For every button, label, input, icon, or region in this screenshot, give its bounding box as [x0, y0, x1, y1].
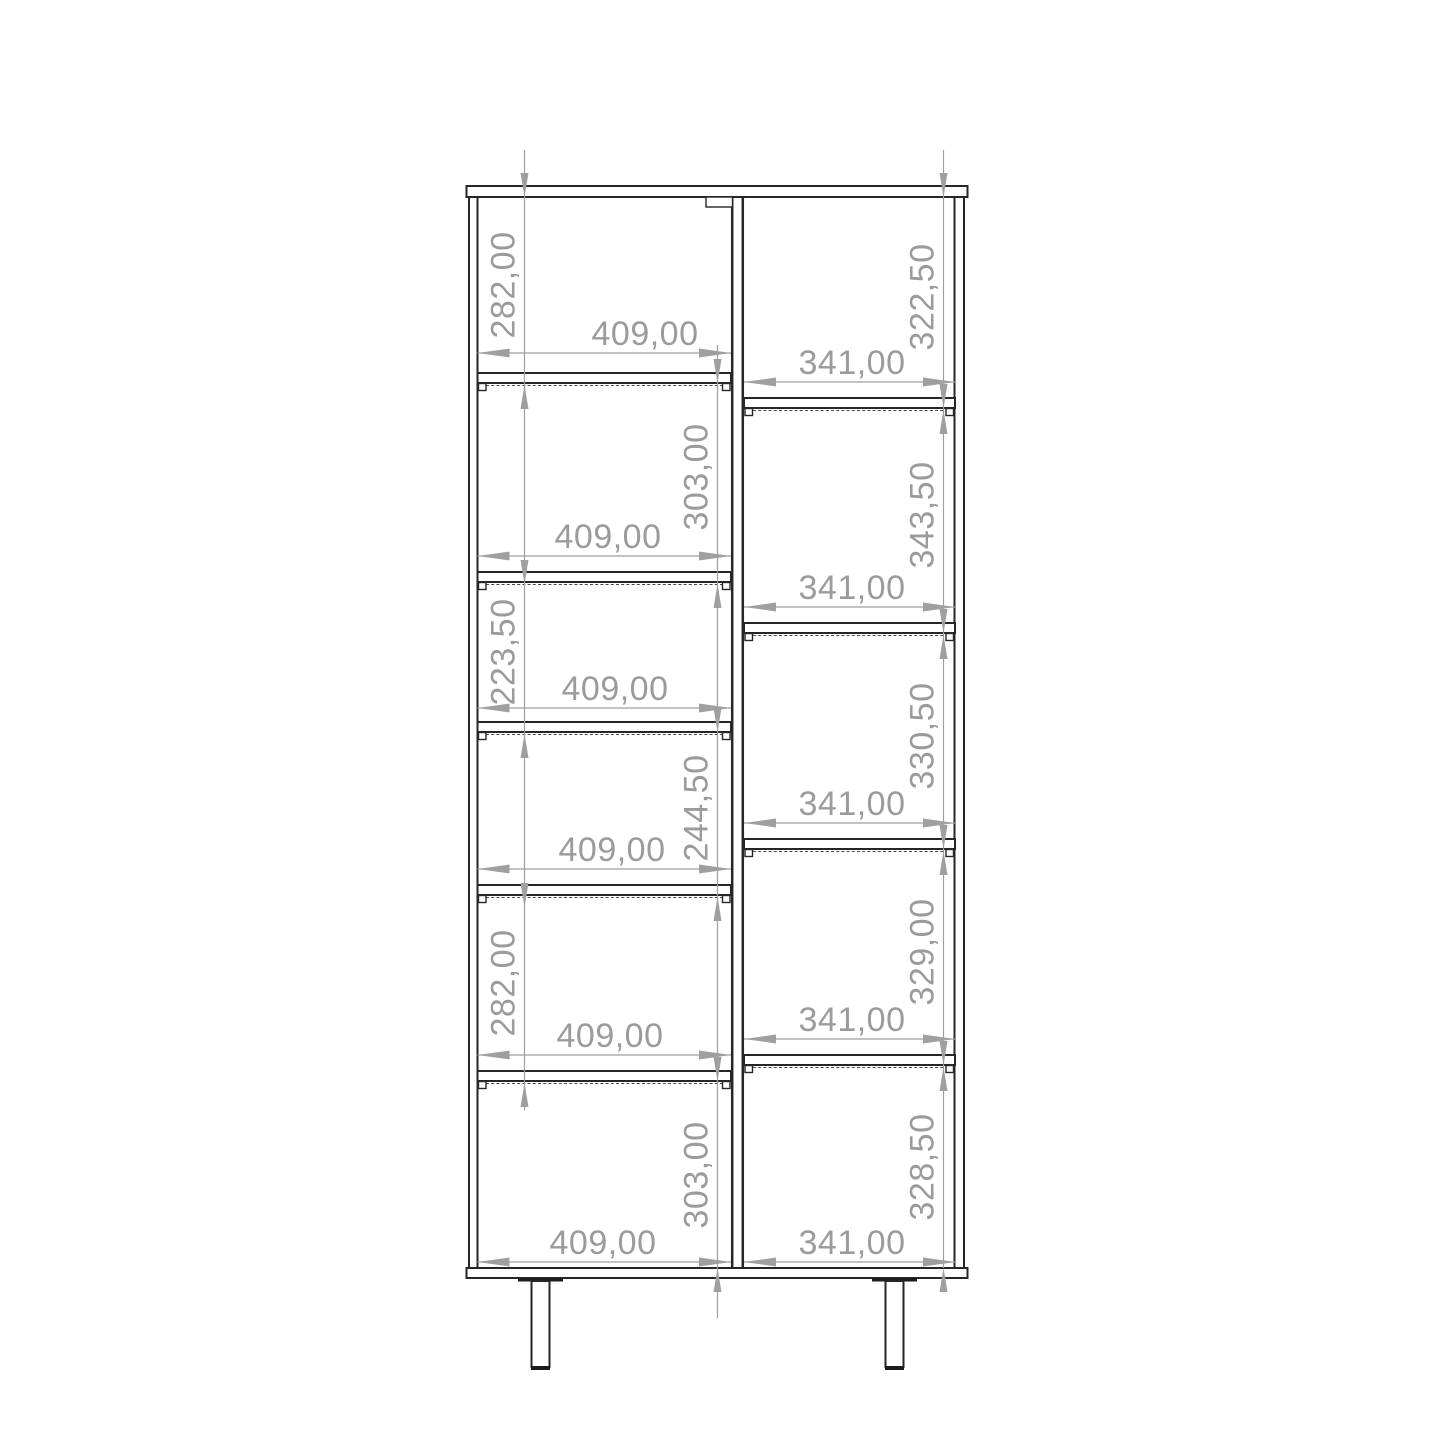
- dim-label-right-width-4: 341,00: [799, 1001, 906, 1039]
- dim-label-right-height-3: 330,50: [904, 683, 942, 790]
- leg-left: [518, 1278, 563, 1370]
- left-side-panel: [469, 197, 478, 1268]
- shelf: [478, 373, 732, 383]
- drawing-canvas: 409,00 409,00 409,00 409,00 409,00 409,0…: [0, 0, 1440, 1440]
- shelf: [744, 839, 955, 849]
- dim-label-right-height-1: 322,50: [904, 244, 942, 351]
- dim-label-right-width-5: 341,00: [799, 1224, 906, 1262]
- dimension-labels: 409,00 409,00 409,00 409,00 409,00 409,0…: [485, 232, 942, 1263]
- dim-label-right-width-2: 341,00: [799, 569, 906, 607]
- shelf: [744, 623, 955, 633]
- divider-top-connector: [706, 197, 733, 207]
- dim-label-left-width-6: 409,00: [550, 1224, 657, 1262]
- dim-label-left-height-1: 282,00: [485, 232, 523, 339]
- shelf: [478, 572, 732, 582]
- dim-label-left-width-1: 409,00: [592, 315, 699, 353]
- dim-label-left-height-6: 303,00: [678, 1122, 716, 1229]
- shelf: [478, 722, 732, 732]
- shelf: [478, 1071, 732, 1081]
- cabinet-dimension-drawing: 409,00 409,00 409,00 409,00 409,00 409,0…: [0, 0, 1440, 1440]
- leg-right: [872, 1278, 917, 1370]
- shelf: [744, 1055, 955, 1065]
- top-panel: [467, 186, 968, 197]
- dim-label-right-height-2: 343,50: [904, 462, 942, 569]
- right-side-panel: [955, 197, 965, 1268]
- dim-label-right-width-1: 341,00: [799, 344, 906, 382]
- dim-label-right-width-3: 341,00: [799, 785, 906, 823]
- shelf: [744, 398, 955, 408]
- dim-label-left-height-3: 223,50: [485, 599, 523, 706]
- dim-label-left-width-2: 409,00: [555, 518, 662, 556]
- dim-label-left-height-5: 282,00: [485, 930, 523, 1037]
- dim-label-left-width-4: 409,00: [559, 831, 666, 869]
- dim-label-left-height-4: 244,50: [678, 755, 716, 862]
- dim-label-right-height-5: 328,50: [904, 1114, 942, 1221]
- dim-label-left-height-2: 303,00: [678, 424, 716, 531]
- shelf: [478, 885, 732, 895]
- dim-label-left-width-5: 409,00: [557, 1017, 664, 1055]
- dim-label-left-width-3: 409,00: [562, 670, 669, 708]
- dim-label-right-height-4: 329,00: [904, 899, 942, 1006]
